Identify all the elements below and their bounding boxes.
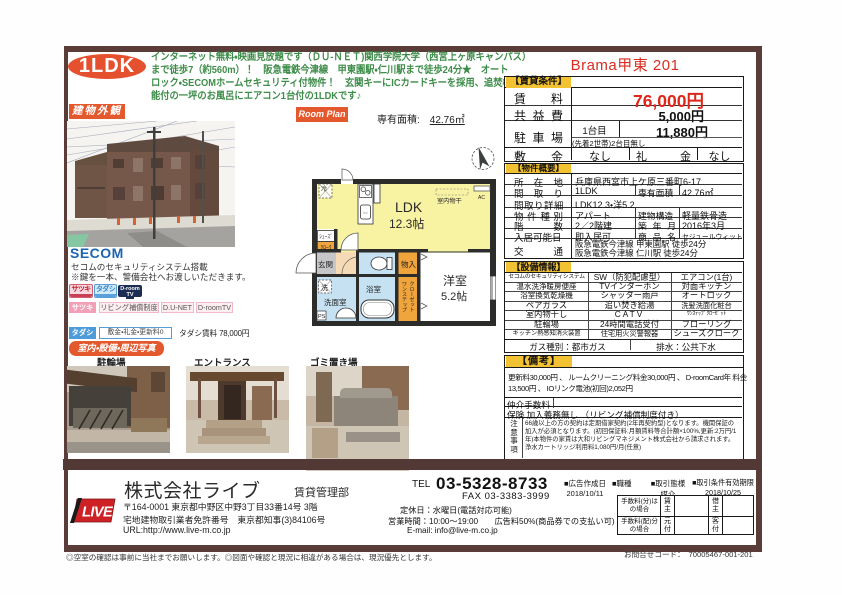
svg-text:AC: AC: [478, 195, 485, 201]
svg-text:洗: 洗: [321, 283, 328, 292]
svg-text:5.2帖: 5.2帖: [441, 290, 467, 303]
svg-text:物入: 物入: [401, 259, 416, 269]
svg-text:<>: <>: [363, 210, 368, 215]
svg-text:洋室: 洋室: [443, 273, 467, 288]
svg-text:冷: 冷: [321, 185, 327, 193]
svg-text:洗面室: 洗面室: [324, 297, 347, 307]
svg-text:ワンステップ: ワンステップ: [401, 281, 407, 313]
svg-text:ｼｭｰｽﾞ: ｼｭｰｽﾞ: [319, 234, 333, 241]
svg-text:玄関: 玄関: [318, 259, 333, 269]
svg-text:LDK: LDK: [395, 199, 423, 215]
svg-text:LIVE: LIVE: [82, 505, 114, 521]
svg-text:PS: PS: [318, 314, 326, 320]
svg-text:室内物干: 室内物干: [437, 197, 462, 205]
svg-text:12.3帖: 12.3帖: [389, 216, 424, 231]
svg-text:浴室: 浴室: [366, 284, 381, 294]
svg-text:クローゼット: クローゼット: [409, 281, 415, 313]
